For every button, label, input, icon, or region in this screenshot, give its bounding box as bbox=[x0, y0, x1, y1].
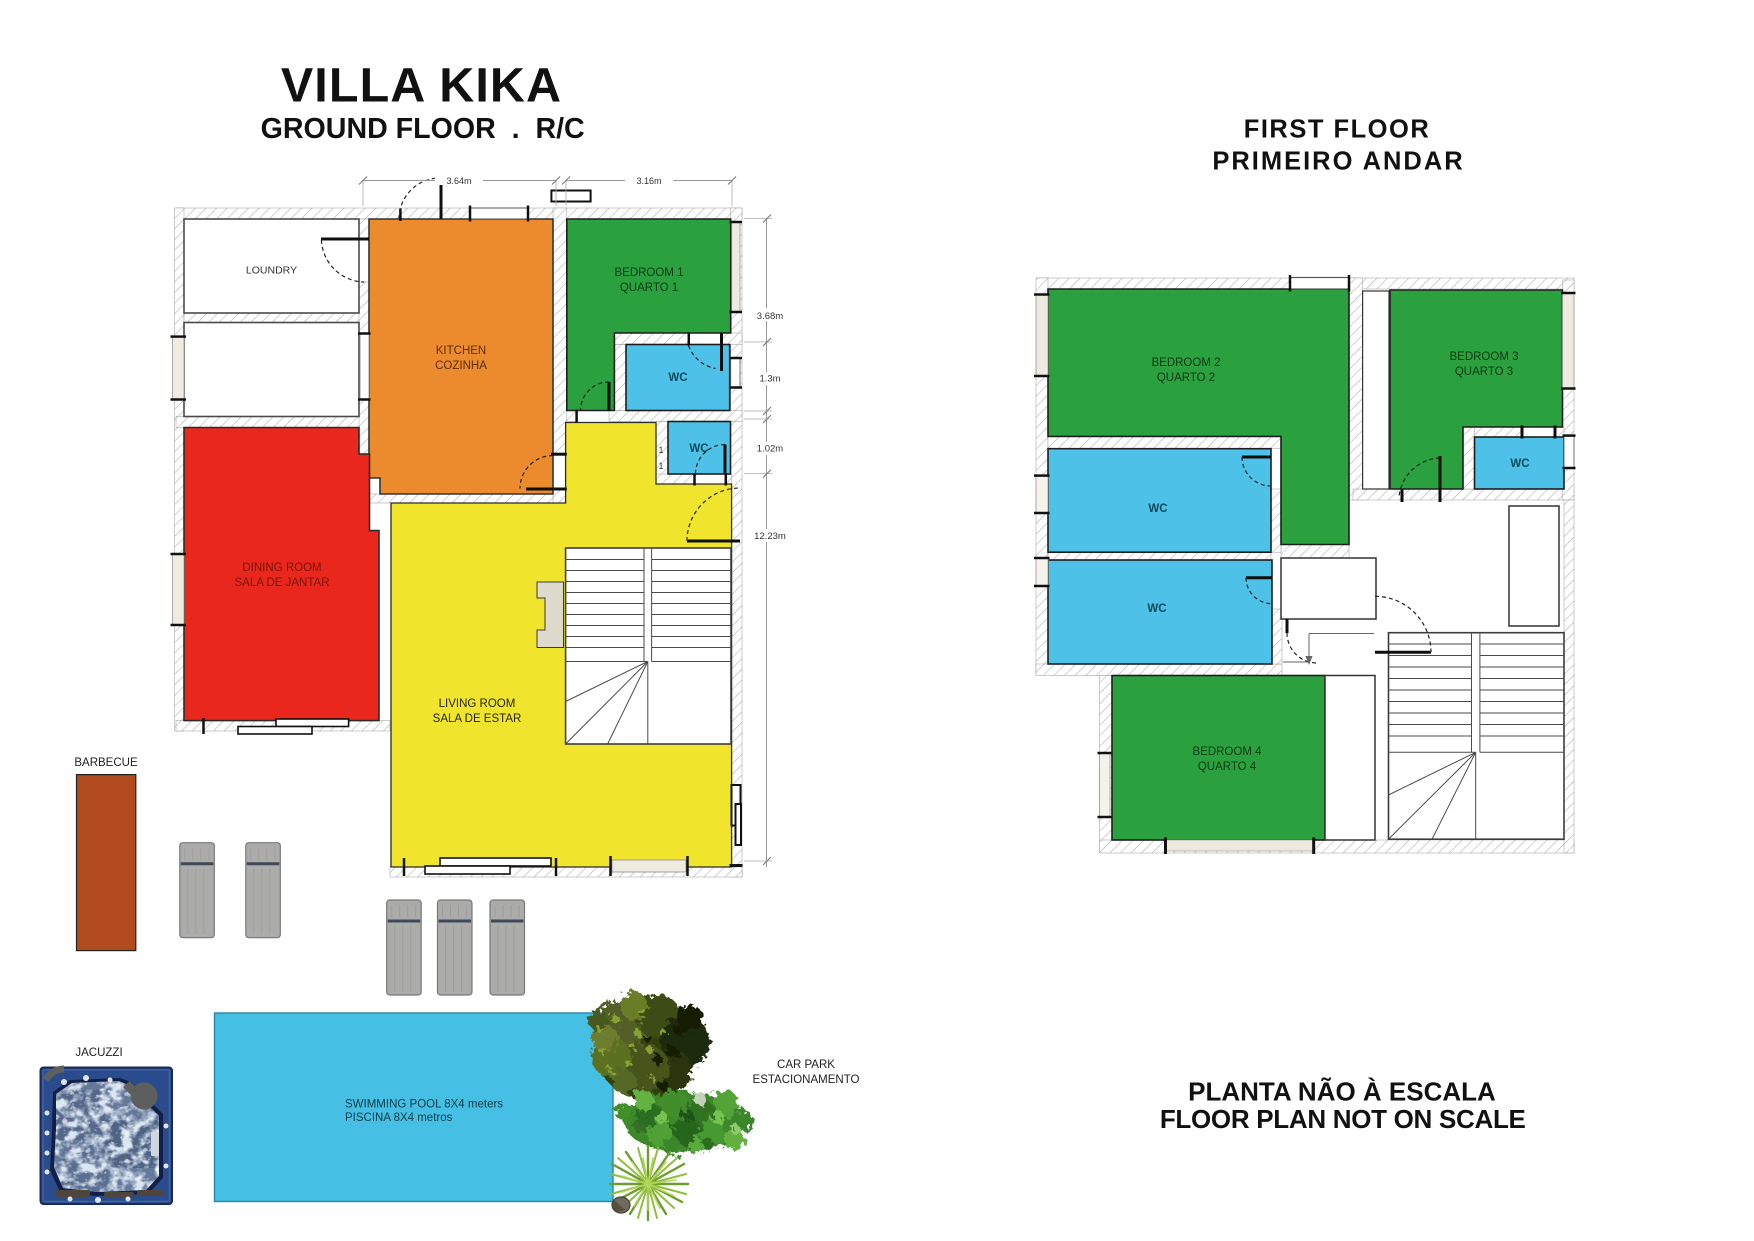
svg-text:BEDROOM 2: BEDROOM 2 bbox=[1151, 357, 1220, 369]
svg-text:GROUND FLOOR . R/C: GROUND FLOOR . R/C bbox=[261, 113, 585, 145]
svg-text:WC: WC bbox=[1147, 603, 1166, 615]
svg-text:12.23m: 12.23m bbox=[754, 531, 786, 542]
svg-text:WC: WC bbox=[668, 372, 687, 384]
svg-text:PRIMEIRO ANDAR: PRIMEIRO ANDAR bbox=[1212, 147, 1464, 175]
svg-text:LOUNDRY: LOUNDRY bbox=[246, 265, 297, 277]
svg-text:SALA DE JANTAR: SALA DE JANTAR bbox=[234, 577, 329, 589]
svg-text:1: 1 bbox=[658, 461, 663, 471]
svg-text:DINING ROOM: DINING ROOM bbox=[242, 562, 321, 574]
svg-text:BARBECUE: BARBECUE bbox=[74, 757, 138, 769]
svg-text:JACUZZI: JACUZZI bbox=[75, 1047, 122, 1059]
svg-text:QUARTO 4: QUARTO 4 bbox=[1198, 761, 1257, 773]
svg-text:LIVING ROOM: LIVING ROOM bbox=[439, 698, 516, 710]
svg-text:VILLA KIKA: VILLA KIKA bbox=[281, 58, 562, 112]
svg-text:QUARTO 3: QUARTO 3 bbox=[1455, 366, 1513, 378]
svg-text:KITCHEN: KITCHEN bbox=[436, 345, 486, 357]
svg-text:1.02m: 1.02m bbox=[757, 444, 783, 455]
svg-text:1: 1 bbox=[658, 445, 663, 455]
svg-text:COZINHA: COZINHA bbox=[435, 360, 487, 372]
svg-text:ESTACIONAMENTO: ESTACIONAMENTO bbox=[753, 1074, 860, 1086]
svg-text:BEDROOM 4: BEDROOM 4 bbox=[1192, 746, 1262, 758]
svg-text:BEDROOM 1: BEDROOM 1 bbox=[614, 267, 683, 279]
svg-text:3.16m: 3.16m bbox=[636, 176, 661, 186]
svg-text:QUARTO 2: QUARTO 2 bbox=[1157, 372, 1215, 384]
svg-text:WC: WC bbox=[689, 443, 708, 455]
svg-text:PLANTA NÃO À ESCALA: PLANTA NÃO À ESCALA bbox=[1188, 1076, 1496, 1106]
svg-text:3.68m: 3.68m bbox=[757, 311, 783, 322]
svg-text:FIRST FLOOR: FIRST FLOOR bbox=[1244, 115, 1430, 143]
svg-text:QUARTO 1: QUARTO 1 bbox=[620, 282, 678, 294]
svg-text:SWIMMING POOL 8X4 meters: SWIMMING POOL 8X4 meters bbox=[345, 1099, 503, 1111]
svg-text:BEDROOM 3: BEDROOM 3 bbox=[1449, 351, 1518, 363]
svg-text:WC: WC bbox=[1148, 503, 1167, 515]
svg-text:CAR PARK: CAR PARK bbox=[777, 1059, 835, 1071]
svg-text:3.64m: 3.64m bbox=[446, 176, 471, 186]
svg-text:1.3m: 1.3m bbox=[759, 374, 780, 385]
svg-text:WC: WC bbox=[1510, 458, 1529, 470]
svg-text:PISCINA 8X4 metros: PISCINA 8X4 metros bbox=[345, 1112, 453, 1124]
svg-text:FLOOR PLAN NOT ON SCALE: FLOOR PLAN NOT ON SCALE bbox=[1160, 1104, 1526, 1134]
svg-text:SALA DE ESTAR: SALA DE ESTAR bbox=[433, 713, 522, 725]
